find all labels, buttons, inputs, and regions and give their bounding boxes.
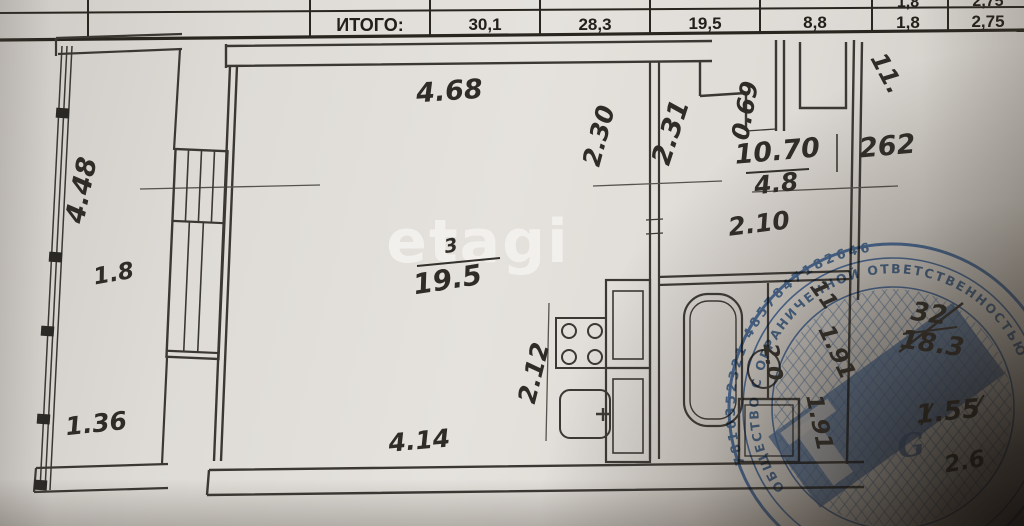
- sink: [560, 390, 610, 438]
- table-partial-value-6: 2,75: [972, 0, 1003, 10]
- stamp-letter-g: G: [895, 424, 927, 465]
- dim-room-bottom: 4.14: [386, 423, 451, 457]
- kitchen-counter: [606, 280, 650, 462]
- loggia-glazing-blocks: [34, 108, 70, 491]
- dim-loggia-mid: 1.8: [91, 258, 136, 291]
- dim-room-top: 4.68: [414, 74, 484, 110]
- floorplan-photo: 1,8 2,75 ИТОГО: 30,1 28,3 19,5 8,8 1,8 2…: [0, 0, 1024, 526]
- hall-note-262: 262: [858, 129, 917, 165]
- table-total-value-1: 30,1: [468, 15, 501, 34]
- dim-kitchen: 2.12: [512, 340, 555, 407]
- table-total-value-4: 8,8: [803, 13, 827, 32]
- hall-area: 4.8: [752, 167, 800, 201]
- bath-note-20: 2.0: [758, 342, 787, 382]
- hall-label: 10.70: [733, 132, 821, 170]
- dim-shaft: 11.: [865, 48, 910, 99]
- stove: [556, 318, 606, 368]
- hall-depth: 2.10: [727, 205, 792, 241]
- table-total-label: ИТОГО:: [336, 15, 403, 35]
- table-partial-value-5: 1,8: [897, 0, 919, 11]
- dim-loggia-end: 1.36: [64, 406, 128, 441]
- table-total-value-2: 28,3: [578, 15, 611, 34]
- floorplan-drawing: 1,8 2,75 ИТОГО: 30,1 28,3 19,5 8,8 1,8 2…: [0, 0, 1024, 526]
- table-total-value-6: 2,75: [971, 12, 1004, 31]
- dim-hall-width: 2.31: [646, 96, 696, 169]
- table-total-value-3: 19,5: [688, 14, 721, 33]
- dim-entry-door: 0.69: [726, 79, 764, 142]
- table-total-value-5: 1,8: [896, 13, 920, 32]
- dim-left-depth: 2.30: [577, 102, 621, 169]
